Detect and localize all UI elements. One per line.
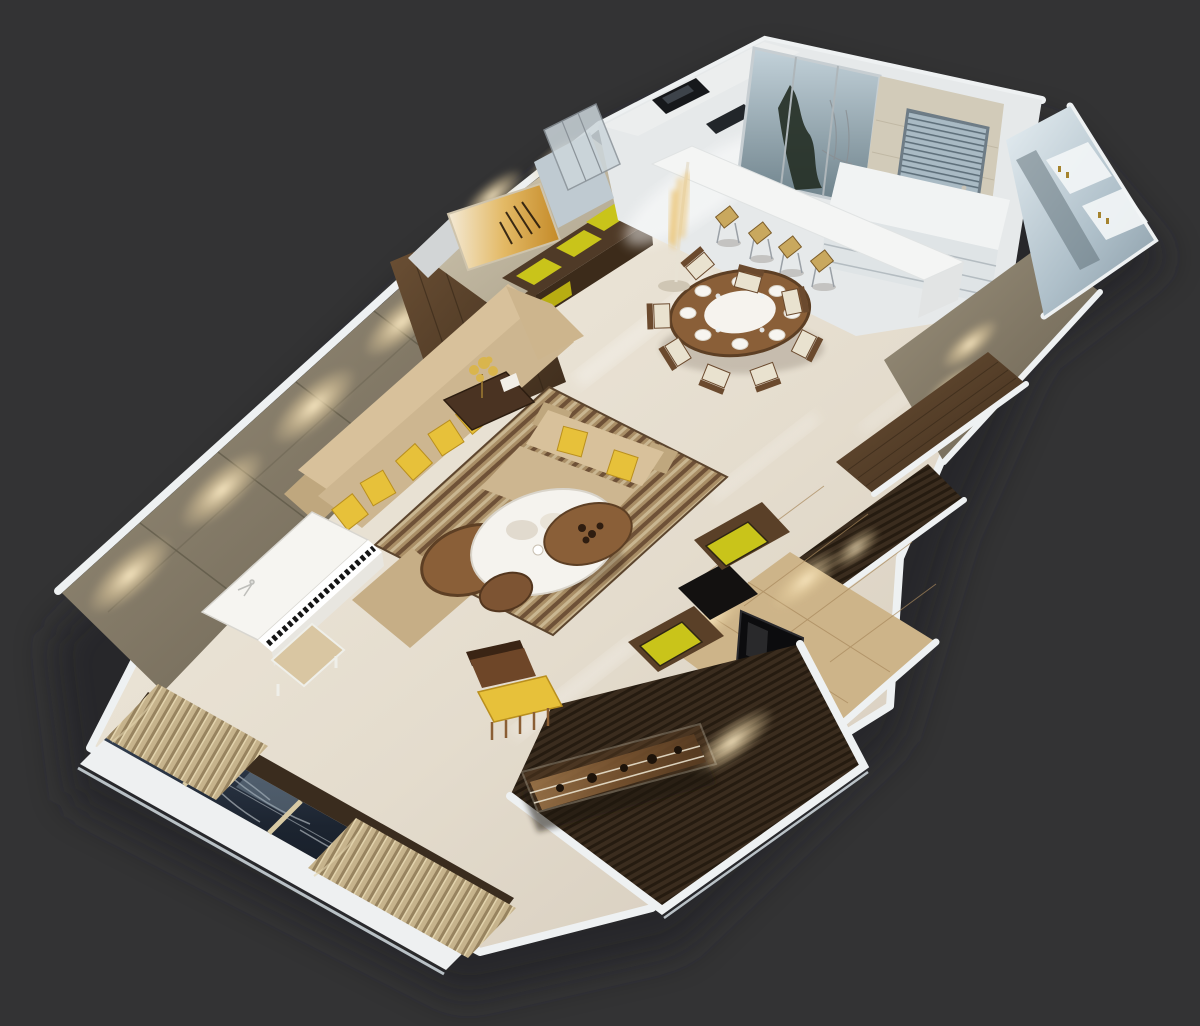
glass-bowl — [506, 520, 538, 540]
coffee-cup — [533, 545, 543, 555]
floorplan-stage — [0, 0, 1200, 1026]
floorplan-render — [0, 0, 1200, 1026]
lamp-base — [658, 280, 690, 292]
